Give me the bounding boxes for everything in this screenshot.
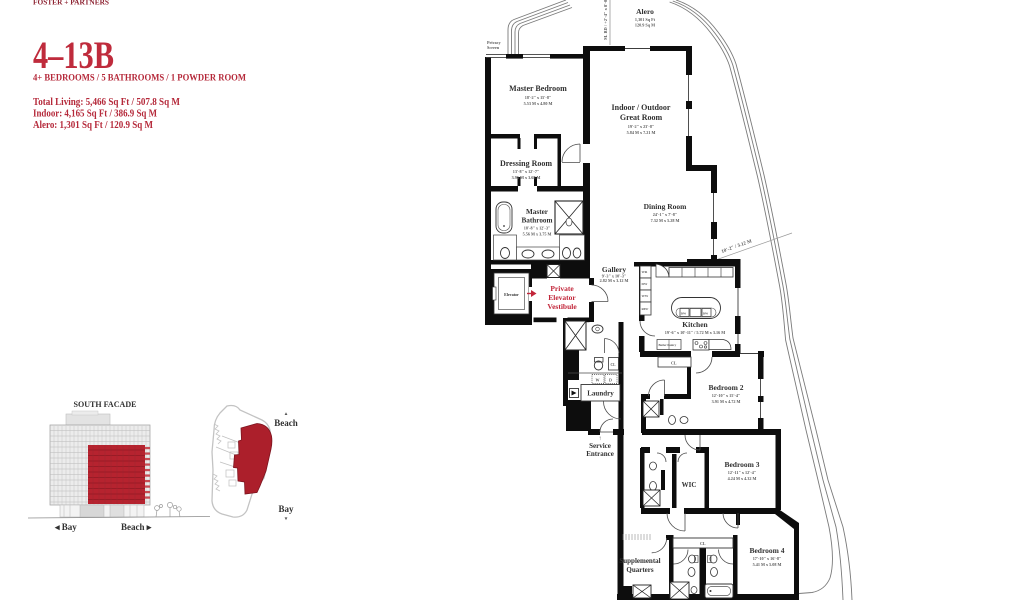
svg-text:3.91 M x 4.72 M: 3.91 M x 4.72 M [712, 399, 741, 404]
svg-text:19'-2" x 23'-8": 19'-2" x 23'-8" [628, 124, 655, 129]
svg-text:Indoor: 4,165 Sq Ft / 386.9 Sq: Indoor: 4,165 Sq Ft / 386.9 Sq M [33, 109, 157, 120]
svg-text:▾: ▾ [284, 517, 288, 522]
svg-text:CL: CL [671, 361, 677, 366]
svg-text:12'-10" x 15'-4": 12'-10" x 15'-4" [712, 393, 741, 398]
svg-text:Elevator: Elevator [548, 293, 576, 302]
svg-text:Master: Master [526, 208, 549, 216]
svg-text:3.96 M x 3.68 M: 3.96 M x 3.68 M [512, 175, 541, 180]
svg-text:Entrance: Entrance [586, 450, 614, 458]
svg-text:DW: DW [681, 312, 687, 316]
svg-text:Total Living: 5,466 Sq Ft / 50: Total Living: 5,466 Sq Ft / 507.8 Sq M [33, 97, 181, 108]
svg-text:Screen: Screen [487, 45, 500, 50]
svg-text:5.53 M x 4.80 M: 5.53 M x 4.80 M [524, 101, 553, 106]
svg-text:24'-1" x 7'-8": 24'-1" x 7'-8" [653, 212, 677, 217]
svg-text:WIC: WIC [682, 481, 697, 489]
svg-text:Quarters: Quarters [626, 566, 653, 574]
svg-text:◂ Bay: ◂ Bay [54, 522, 77, 532]
svg-text:7.32 M x 5.28 M: 7.32 M x 5.28 M [651, 218, 680, 223]
svg-text:12'-11" x 12'-4": 12'-11" x 12'-4" [728, 470, 756, 475]
svg-text:5.84 M x 7.21 M: 5.84 M x 7.21 M [627, 130, 656, 135]
svg-text:Supplemental: Supplemental [619, 557, 660, 565]
svg-text:1,301 Sq Ft: 1,301 Sq Ft [635, 17, 656, 22]
svg-text:Bathroom: Bathroom [521, 217, 552, 225]
svg-text:SOUTH FACADE: SOUTH FACADE [74, 399, 137, 409]
svg-text:Elevator: Elevator [504, 292, 519, 297]
svg-text:CL: CL [611, 363, 617, 367]
svg-text:Vestibule: Vestibule [547, 302, 577, 311]
svg-text:4–13B: 4–13B [33, 34, 114, 77]
svg-text:120.9 Sq M: 120.9 Sq M [635, 23, 655, 28]
svg-text:18'-2" x 15'-8": 18'-2" x 15'-8" [525, 95, 552, 100]
svg-text:18'-8" x 12'-3": 18'-8" x 12'-3" [524, 226, 551, 231]
svg-text:Dining Room: Dining Room [644, 202, 687, 211]
svg-text:Laundry: Laundry [587, 390, 614, 398]
svg-text:REF: REF [642, 307, 649, 311]
svg-text:Indoor / Outdoor: Indoor / Outdoor [612, 103, 671, 112]
svg-text:▴: ▴ [284, 412, 288, 417]
svg-text:Private: Private [550, 284, 574, 293]
svg-text:DW: DW [642, 282, 648, 286]
svg-text:13'-8" x 12'-7": 13'-8" x 12'-7" [513, 169, 540, 174]
svg-text:WR: WR [642, 270, 648, 274]
svg-text:Bedroom 3: Bedroom 3 [724, 460, 759, 469]
svg-text:2.82 M x 3.12 M: 2.82 M x 3.12 M [600, 278, 629, 283]
svg-text:FOSTER + PARTNERS: FOSTER + PARTNERS [33, 0, 109, 7]
svg-text:D: D [609, 378, 612, 383]
svg-text:Dressing Room: Dressing Room [500, 159, 552, 168]
svg-text:Kitchen: Kitchen [682, 320, 708, 329]
svg-text:M. BD / +2'-4" x 8'-0": M. BD / +2'-4" x 8'-0" [603, 0, 608, 40]
svg-text:Butler Pantry: Butler Pantry [659, 343, 677, 347]
svg-text:W: W [596, 378, 600, 383]
svg-text:4.24 M x 4.32 M: 4.24 M x 4.32 M [728, 476, 757, 481]
svg-text:5.41 M x 5.08 M: 5.41 M x 5.08 M [753, 562, 782, 567]
svg-text:Beach: Beach [274, 418, 298, 428]
svg-text:CL: CL [700, 541, 706, 546]
svg-text:4+ BEDROOMS / 5 BATHROOMS / 1: 4+ BEDROOMS / 5 BATHROOMS / 1 POWDER ROO… [33, 74, 246, 84]
svg-text:Bay: Bay [278, 504, 294, 514]
svg-text:Master Bedroom: Master Bedroom [509, 84, 567, 93]
svg-text:Great Room: Great Room [620, 113, 663, 122]
svg-text:Alero: Alero [636, 7, 654, 16]
svg-text:17'-10" x 16'-8": 17'-10" x 16'-8" [753, 556, 782, 561]
svg-text:5.56 M x 3.75 M: 5.56 M x 3.75 M [523, 232, 552, 237]
svg-text:Bedroom 2: Bedroom 2 [708, 383, 743, 392]
svg-text:Bedroom 4: Bedroom 4 [749, 546, 784, 555]
svg-text:19'-6" x 10'-11" / 5.72 M x 3.: 19'-6" x 10'-11" / 5.72 M x 3.16 M [665, 330, 726, 335]
svg-text:DW: DW [703, 312, 709, 316]
svg-text:Beach ▸: Beach ▸ [121, 522, 152, 532]
svg-text:Service: Service [589, 442, 611, 450]
svg-text:WW: WW [642, 294, 649, 298]
svg-text:Alero: 1,301 Sq Ft / 120.9 Sq: Alero: 1,301 Sq Ft / 120.9 Sq M [33, 120, 153, 131]
